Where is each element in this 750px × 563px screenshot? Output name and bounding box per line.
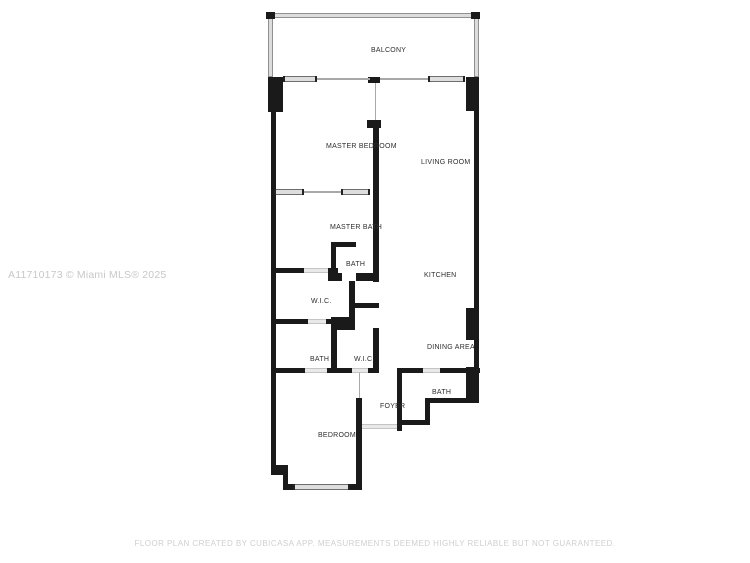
wall-thin-line — [380, 78, 428, 80]
wall-segment — [428, 398, 479, 403]
wall-segment — [356, 398, 362, 490]
sliding-door — [274, 189, 304, 195]
wall-segment — [327, 368, 352, 373]
door-opening — [352, 368, 368, 373]
wall-segment — [271, 112, 276, 470]
railing-post — [266, 12, 275, 19]
wall-segment — [466, 308, 479, 340]
floor-plan: BALCONYMASTER BEDROOMLIVING ROOMMASTER B… — [0, 0, 750, 563]
wall-segment — [368, 368, 379, 373]
wall-segment — [397, 368, 423, 373]
floor-plan-page: BALCONYMASTER BEDROOMLIVING ROOMMASTER B… — [0, 0, 750, 563]
wall-segment — [326, 319, 335, 324]
cubicasa-disclaimer: FLOOR PLAN CREATED BY CUBICASA APP. MEAS… — [0, 539, 750, 548]
door-opening — [304, 268, 328, 273]
wall-segment — [331, 330, 337, 373]
wall-segment — [356, 273, 379, 281]
door-opening — [308, 319, 326, 324]
wall-thin-line — [359, 373, 360, 398]
balcony-railing — [268, 13, 273, 77]
sliding-door — [283, 76, 317, 82]
railing-post — [471, 12, 480, 19]
wall-segment — [268, 77, 283, 112]
wall-segment — [349, 303, 379, 308]
sliding-door — [341, 189, 370, 195]
mls-watermark: A11710173 © Miami MLS® 2025 — [8, 269, 166, 281]
wall-segment — [466, 77, 479, 111]
window — [293, 484, 350, 490]
wall-segment — [271, 268, 304, 273]
wall-segment — [271, 319, 308, 324]
door-opening — [362, 424, 397, 429]
balcony-railing — [268, 13, 479, 18]
door-opening — [423, 368, 440, 373]
wall-segment — [474, 111, 479, 308]
wall-thin-line — [317, 78, 370, 80]
wall-segment — [440, 368, 480, 373]
wall-segment — [373, 328, 379, 373]
wall-segment — [397, 368, 402, 431]
wall-thin-line — [304, 191, 341, 193]
wall-thin-line — [375, 83, 376, 120]
wall-segment — [271, 368, 305, 373]
wall-segment — [328, 273, 342, 281]
door-opening — [305, 368, 327, 373]
sliding-door — [428, 76, 465, 82]
balcony-railing — [474, 13, 479, 77]
